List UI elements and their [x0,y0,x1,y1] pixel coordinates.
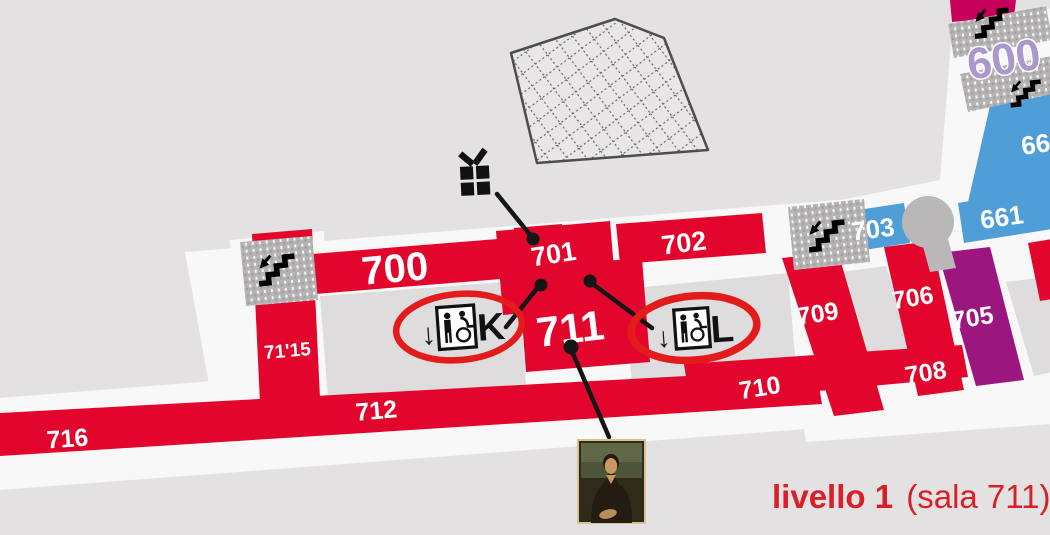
down-arrow-icon: ↓ [420,318,437,352]
louvre-level1-map: 700 701 702 711 71'15 712 716 710 708 70… [0,0,1050,535]
elevator-box [674,308,711,349]
level-caption-bold: livello 1 [772,478,893,515]
label-703: 703 [850,212,897,247]
mona-lisa-thumbnail [578,440,645,523]
mona-lisa-callout-dot [564,340,579,355]
label-700: 700 [360,244,430,294]
label-716: 716 [46,424,90,455]
elevator-l-callout-dot [584,275,597,288]
label-661: 661 [978,199,1025,235]
elevator-l-letter: L [709,308,735,352]
label-7115: 71'15 [263,339,312,364]
label-712: 712 [354,395,398,427]
label-662: 662 [1019,125,1050,161]
elevator-k-letter: K [476,306,507,350]
down-arrow-icon: ↓ [656,321,672,353]
gift-callout-dot [527,233,540,246]
level-caption: livello 1 (sala 711) [772,478,1050,515]
level-caption-regular: (sala 711) [906,478,1050,515]
label-702: 702 [660,225,708,260]
elevator-k-callout-dot [535,279,548,292]
